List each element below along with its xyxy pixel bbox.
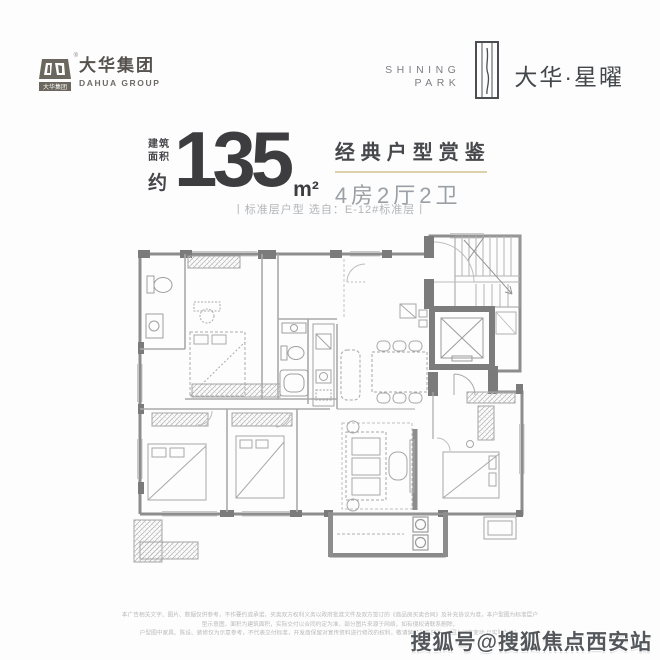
headline-text: 经典户型赏鉴	[335, 136, 487, 165]
bedroom-4	[437, 392, 515, 498]
balcony	[328, 512, 448, 557]
shining-park-wordmark: SHINING PARK	[385, 64, 460, 90]
bathroom-1	[146, 276, 172, 338]
dining-area	[341, 341, 427, 403]
area-value: 135	[174, 122, 289, 196]
headline-block: 建筑 面积 约 135 m² 经典户型赏鉴 4房2厅2卫	[148, 122, 487, 210]
floorplan-caption: 丨标准层户型 选自：E-12#标准层丨	[0, 201, 660, 217]
utility-room	[344, 259, 427, 327]
bedroom-3	[232, 413, 292, 498]
staircase	[455, 236, 520, 307]
ac-platforms	[134, 517, 516, 562]
brand-name-en: DAHUA GROUP	[79, 78, 161, 88]
project-brand-name: 大华·星曜	[514, 58, 624, 92]
tower-mark-icon	[474, 40, 500, 100]
bedroom-2	[148, 411, 212, 500]
svg-text:大华集团: 大华集团	[43, 83, 67, 91]
area-prefix: 建筑 面积 约	[148, 139, 170, 195]
area-unit: m²	[293, 178, 319, 202]
dahua-group-logo: ® 大华集团 大华集团 DAHUA GROUP	[38, 57, 161, 98]
shining-park-logo: SHINING PARK 大华·星曜	[385, 40, 624, 100]
bathroom-2	[280, 323, 308, 396]
dahua-emblem-icon: 大华集团	[38, 57, 72, 93]
elevator	[432, 309, 516, 367]
kitchen	[313, 324, 334, 406]
floor-plan-drawing	[132, 224, 652, 569]
sohu-watermark: 搜狐号@搜狐焦点西安站	[411, 626, 652, 656]
poster: ® 大华集团 大华集团 DAHUA GROUP SHINING PARK	[0, 0, 660, 660]
registered-trademark: ®	[74, 53, 78, 59]
bedroom-1	[188, 256, 280, 397]
living-room	[342, 421, 414, 511]
gold-divider	[335, 171, 487, 173]
brand-name-cn: 大华集团	[79, 57, 161, 76]
